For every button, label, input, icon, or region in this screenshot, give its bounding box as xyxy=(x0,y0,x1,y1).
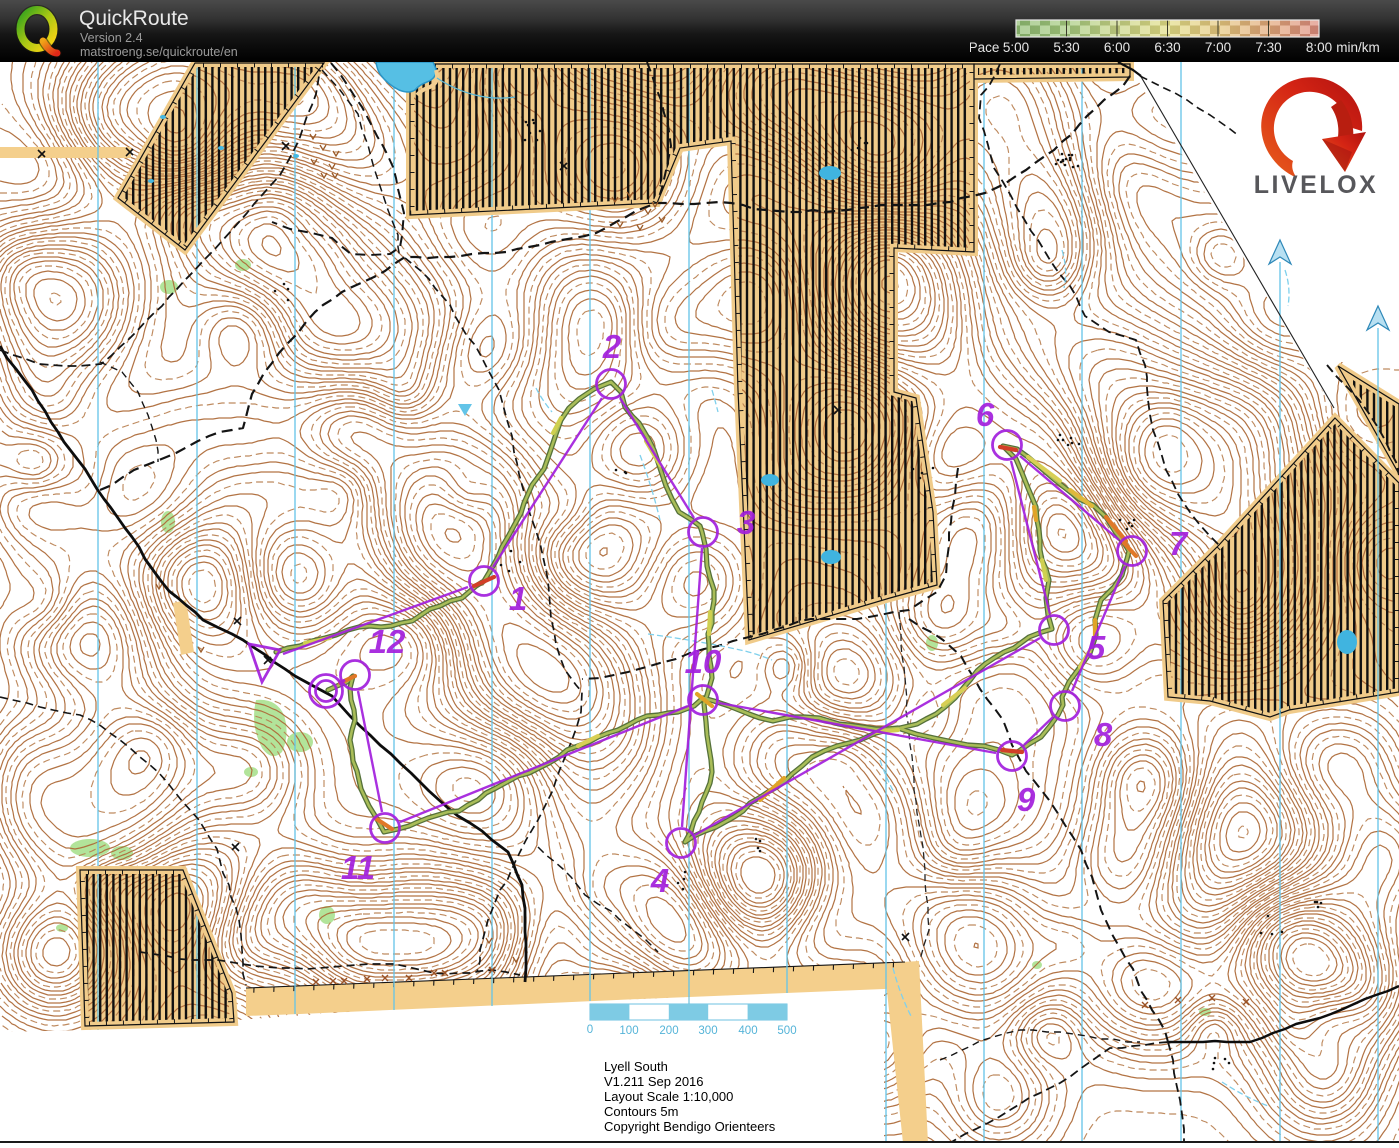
svg-text:7: 7 xyxy=(1169,525,1189,562)
svg-text:5:00: 5:00 xyxy=(1003,40,1029,55)
svg-text:6:30: 6:30 xyxy=(1154,40,1180,55)
svg-text:6: 6 xyxy=(976,396,995,433)
svg-text:Lyell South: Lyell South xyxy=(604,1059,668,1074)
svg-text:10: 10 xyxy=(685,643,722,680)
svg-text:Copyright Bendigo Orienteers: Copyright Bendigo Orienteers xyxy=(604,1119,776,1134)
svg-text:1: 1 xyxy=(509,580,527,617)
svg-text:5:30: 5:30 xyxy=(1053,40,1079,55)
svg-text:500: 500 xyxy=(777,1025,796,1037)
svg-text:0: 0 xyxy=(587,1024,593,1036)
svg-text:7:30: 7:30 xyxy=(1255,40,1281,55)
svg-text:100: 100 xyxy=(619,1025,638,1037)
svg-text:7:00: 7:00 xyxy=(1205,40,1231,55)
svg-text:V1.211 Sep 2016: V1.211 Sep 2016 xyxy=(604,1074,704,1089)
svg-text:8: 8 xyxy=(1094,716,1113,753)
svg-text:4: 4 xyxy=(650,862,669,899)
svg-text:2: 2 xyxy=(602,328,622,365)
svg-text:400: 400 xyxy=(738,1025,757,1037)
svg-text:200: 200 xyxy=(659,1025,678,1037)
svg-text:3: 3 xyxy=(737,504,755,541)
svg-text:6:00: 6:00 xyxy=(1104,40,1130,55)
svg-text:300: 300 xyxy=(698,1025,717,1037)
svg-text:11: 11 xyxy=(341,849,375,886)
svg-text:min/km: min/km xyxy=(1336,40,1380,55)
svg-text:LIVELOX: LIVELOX xyxy=(1254,171,1378,199)
svg-text:12: 12 xyxy=(369,623,406,660)
svg-text:9: 9 xyxy=(1017,781,1036,818)
svg-text:8:00: 8:00 xyxy=(1306,40,1332,55)
svg-text:Layout Scale 1:10,000: Layout Scale 1:10,000 xyxy=(604,1089,733,1104)
svg-text:Contours 5m: Contours 5m xyxy=(604,1104,678,1119)
svg-text:Pace: Pace xyxy=(970,40,999,55)
svg-text:5: 5 xyxy=(1087,629,1106,666)
